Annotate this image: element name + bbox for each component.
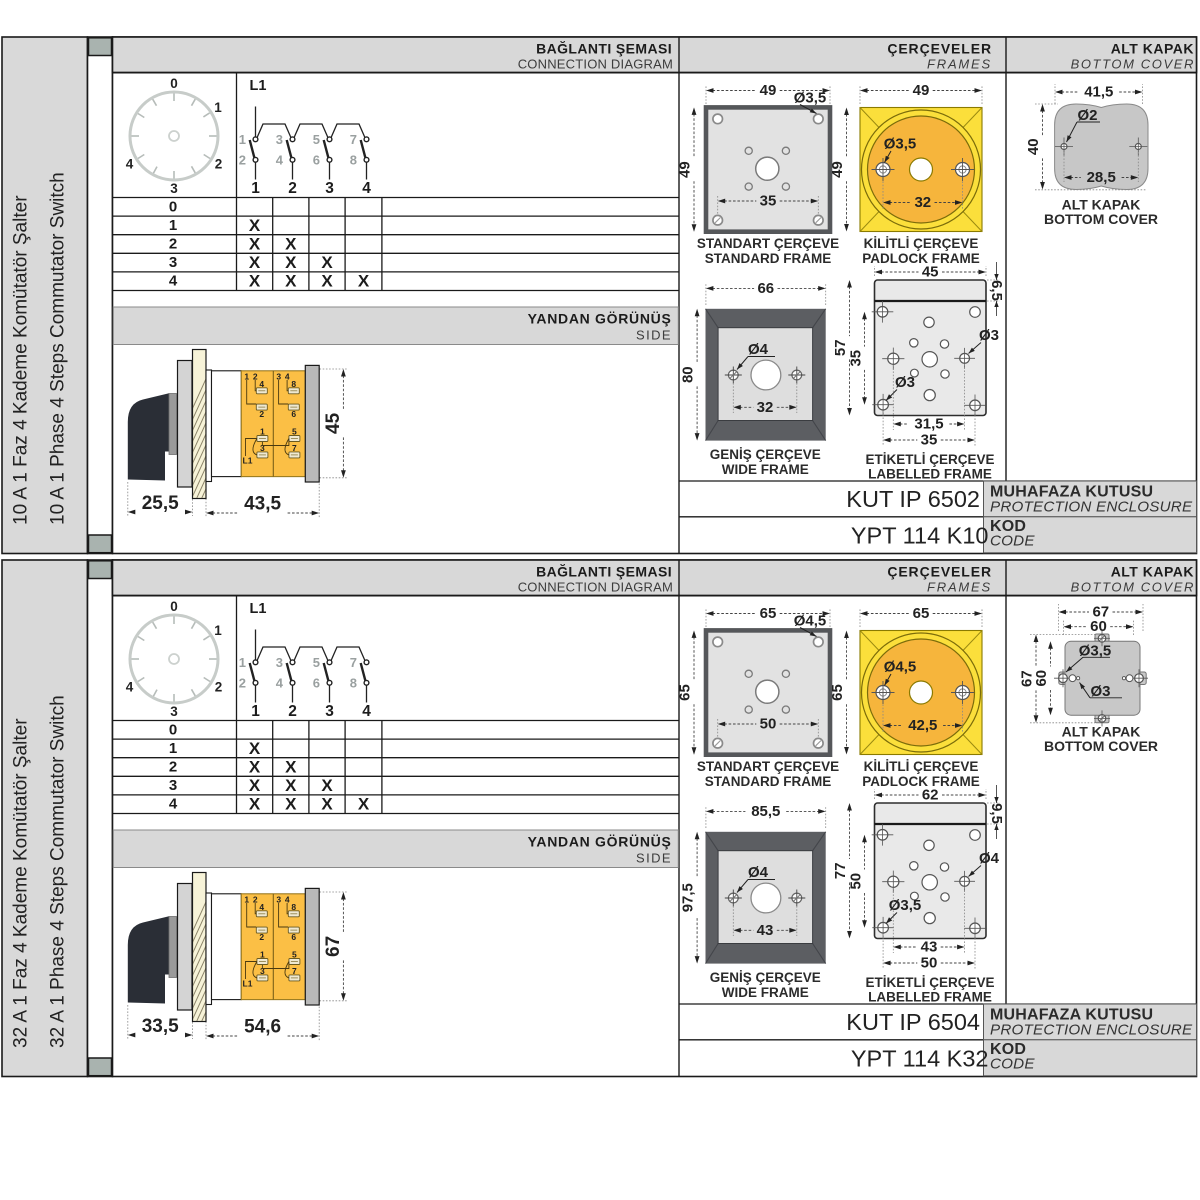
svg-text:Ø3,5: Ø3,5 [1079,642,1112,659]
svg-text:CODE: CODE [990,1056,1035,1073]
svg-text:ÇERÇEVELER: ÇERÇEVELER [887,40,992,56]
svg-text:Ø3: Ø3 [979,327,999,344]
svg-text:2: 2 [253,371,258,381]
svg-text:97,5: 97,5 [680,883,697,912]
svg-text:KUT IP 6504: KUT IP 6504 [846,1009,980,1035]
svg-text:3: 3 [169,254,177,271]
svg-text:WIDE FRAME: WIDE FRAME [722,985,809,1000]
svg-text:50: 50 [921,955,938,972]
svg-text:1: 1 [239,655,246,670]
svg-text:7: 7 [350,655,357,670]
svg-text:1: 1 [214,623,222,638]
svg-text:YPT 114 K10: YPT 114 K10 [851,523,989,549]
svg-text:35: 35 [848,350,865,367]
svg-text:49: 49 [913,82,930,99]
svg-text:10 A 1 Phase 4 Steps Commutato: 10 A 1 Phase 4 Steps Commutator Switch [48,172,69,525]
svg-text:2: 2 [288,180,297,197]
svg-text:4: 4 [276,153,284,168]
svg-text:1: 1 [214,100,222,115]
svg-text:35: 35 [760,193,777,210]
svg-text:9,5: 9,5 [988,803,1005,824]
svg-text:PROTECTION ENCLOSURE: PROTECTION ENCLOSURE [990,499,1193,516]
svg-text:6: 6 [313,676,320,691]
svg-text:CONNECTION DIAGRAM: CONNECTION DIAGRAM [518,579,673,594]
svg-text:Ø3,5: Ø3,5 [884,136,917,153]
svg-text:Ø4: Ø4 [979,850,1000,867]
svg-text:GENİŞ ÇERÇEVE: GENİŞ ÇERÇEVE [710,447,821,462]
svg-text:FRAMES: FRAMES [927,56,992,71]
svg-text:PROTECTION ENCLOSURE: PROTECTION ENCLOSURE [990,1022,1193,1039]
svg-text:6: 6 [291,932,296,942]
svg-text:2: 2 [239,153,246,168]
svg-text:BOTTOM COVER: BOTTOM COVER [1044,211,1158,227]
svg-text:ÇERÇEVELER: ÇERÇEVELER [887,563,992,579]
svg-text:WIDE FRAME: WIDE FRAME [722,462,809,477]
svg-text:49: 49 [760,82,777,99]
svg-text:4: 4 [276,676,284,691]
svg-text:X: X [358,795,370,814]
svg-text:X: X [285,795,297,814]
svg-text:67: 67 [323,936,344,957]
svg-text:49: 49 [677,161,694,178]
svg-text:YPT 114 K32: YPT 114 K32 [851,1046,989,1072]
svg-text:GENİŞ ÇERÇEVE: GENİŞ ÇERÇEVE [710,970,821,985]
svg-text:65: 65 [829,684,846,701]
svg-text:LABELLED FRAME: LABELLED FRAME [868,990,992,1005]
svg-text:L1: L1 [250,601,267,617]
svg-text:STANDART ÇERÇEVE: STANDART ÇERÇEVE [697,759,839,774]
svg-text:X: X [321,795,333,814]
svg-text:0: 0 [169,198,177,215]
svg-text:1: 1 [169,740,177,757]
svg-text:6: 6 [313,153,320,168]
svg-text:6,5: 6,5 [988,280,1005,301]
svg-text:65: 65 [760,605,777,622]
svg-text:0: 0 [169,721,177,738]
svg-text:BOTTOM COVER: BOTTOM COVER [1071,579,1195,594]
svg-text:41,5: 41,5 [1084,84,1113,101]
svg-text:2: 2 [253,894,258,904]
svg-text:2: 2 [169,236,177,253]
svg-text:1: 1 [244,371,249,381]
svg-text:STANDARD FRAME: STANDARD FRAME [705,251,832,266]
svg-text:4: 4 [169,796,178,813]
svg-text:2: 2 [215,156,223,171]
svg-text:1: 1 [244,894,249,904]
svg-text:2: 2 [239,676,246,691]
svg-text:25,5: 25,5 [142,493,179,514]
svg-text:7: 7 [292,966,297,976]
svg-text:X: X [358,272,370,291]
svg-text:32 A 1 Faz 4 Kademe Komütatör: 32 A 1 Faz 4 Kademe Komütatör Şalter [11,718,32,1048]
svg-text:8: 8 [291,902,296,912]
svg-text:77: 77 [832,862,849,879]
svg-text:L1: L1 [250,78,267,94]
svg-text:8: 8 [291,379,296,389]
svg-text:3: 3 [169,777,177,794]
svg-text:BOTTOM COVER: BOTTOM COVER [1071,56,1195,71]
svg-text:31,5: 31,5 [914,416,943,433]
svg-text:4: 4 [126,156,134,171]
svg-text:6: 6 [291,409,296,419]
svg-text:X: X [321,272,333,291]
svg-text:STANDARD FRAME: STANDARD FRAME [705,774,832,789]
svg-text:4: 4 [362,180,371,197]
svg-text:43,5: 43,5 [244,494,281,515]
svg-text:1: 1 [260,427,265,437]
svg-text:X: X [249,795,261,814]
svg-text:40: 40 [1025,138,1042,155]
svg-text:4: 4 [362,703,371,720]
svg-text:5: 5 [292,950,297,960]
svg-text:45: 45 [922,264,939,281]
svg-text:4: 4 [259,902,264,912]
svg-text:57: 57 [832,339,849,356]
svg-text:5: 5 [313,132,320,147]
svg-text:KUT IP 6502: KUT IP 6502 [846,486,980,512]
svg-text:SIDE: SIDE [636,851,672,866]
svg-text:Ø4,5: Ø4,5 [794,613,827,630]
svg-text:L1: L1 [243,456,253,466]
svg-text:65: 65 [677,684,694,701]
svg-text:4: 4 [285,894,290,904]
svg-text:LABELLED FRAME: LABELLED FRAME [868,467,992,482]
svg-text:Ø4: Ø4 [748,864,769,881]
svg-text:X: X [321,253,333,272]
svg-text:X: X [249,253,261,272]
svg-text:X: X [285,758,297,777]
svg-text:60: 60 [1090,618,1107,635]
svg-text:2: 2 [215,679,223,694]
svg-text:Ø4,5: Ø4,5 [884,659,917,676]
svg-text:L1: L1 [243,979,253,989]
svg-text:1: 1 [251,180,260,197]
svg-text:32: 32 [914,194,931,211]
svg-text:54,6: 54,6 [244,1017,281,1038]
svg-text:1: 1 [239,132,246,147]
svg-text:SIDE: SIDE [636,328,672,343]
svg-text:1: 1 [251,703,260,720]
svg-text:CODE: CODE [990,533,1035,550]
svg-text:49: 49 [829,161,846,178]
svg-text:0: 0 [170,76,178,91]
svg-text:43: 43 [757,922,774,939]
svg-text:4: 4 [126,679,134,694]
svg-text:85,5: 85,5 [751,803,780,820]
svg-text:X: X [285,776,297,795]
svg-text:ALT KAPAK: ALT KAPAK [1111,40,1194,56]
svg-text:0: 0 [170,599,178,614]
svg-text:80: 80 [680,366,697,383]
svg-text:8: 8 [350,153,357,168]
svg-text:35: 35 [921,432,938,449]
svg-text:32 A 1 Phase 4 Steps Commutato: 32 A 1 Phase 4 Steps Commutator Switch [48,695,69,1048]
svg-text:X: X [249,272,261,291]
svg-text:X: X [249,776,261,795]
svg-text:1: 1 [260,950,265,960]
svg-text:3: 3 [276,132,283,147]
svg-text:3: 3 [325,180,334,197]
svg-text:4: 4 [169,273,178,290]
svg-text:ETİKETLİ ÇERÇEVE: ETİKETLİ ÇERÇEVE [865,452,994,467]
svg-text:66: 66 [757,280,774,297]
svg-text:X: X [249,235,261,254]
svg-text:7: 7 [350,132,357,147]
svg-text:3: 3 [276,894,281,904]
svg-text:X: X [285,253,297,272]
svg-text:X: X [285,235,297,254]
svg-text:X: X [321,776,333,795]
svg-text:8: 8 [350,676,357,691]
svg-text:4: 4 [259,379,264,389]
svg-text:3: 3 [170,181,178,196]
svg-text:33,5: 33,5 [142,1016,179,1037]
svg-text:28,5: 28,5 [1087,169,1116,186]
svg-text:1: 1 [169,217,177,234]
svg-text:YANDAN GÖRÜNÜŞ: YANDAN GÖRÜNÜŞ [528,834,672,850]
svg-text:BOTTOM COVER: BOTTOM COVER [1044,738,1158,754]
svg-text:X: X [285,272,297,291]
svg-text:CONNECTION DIAGRAM: CONNECTION DIAGRAM [518,56,673,71]
svg-text:2: 2 [288,703,297,720]
svg-text:Ø3: Ø3 [895,374,915,391]
svg-text:KİLİTLİ ÇERÇEVE: KİLİTLİ ÇERÇEVE [864,236,979,251]
svg-text:2: 2 [259,932,264,942]
svg-text:7: 7 [292,443,297,453]
svg-text:ALT KAPAK: ALT KAPAK [1111,563,1194,579]
svg-text:YANDAN GÖRÜNÜŞ: YANDAN GÖRÜNÜŞ [528,311,672,327]
svg-text:5: 5 [292,427,297,437]
svg-text:X: X [249,758,261,777]
svg-text:4: 4 [285,371,290,381]
svg-text:5: 5 [313,655,320,670]
svg-text:45: 45 [323,412,344,434]
svg-text:60: 60 [1033,670,1050,687]
svg-text:2: 2 [259,409,264,419]
svg-text:X: X [249,216,261,235]
svg-text:62: 62 [922,787,939,804]
svg-text:ETİKETLİ ÇERÇEVE: ETİKETLİ ÇERÇEVE [865,975,994,990]
svg-text:32: 32 [757,399,774,416]
svg-text:50: 50 [760,716,777,733]
svg-text:2: 2 [169,759,177,776]
svg-text:Ø2: Ø2 [1077,107,1097,124]
svg-text:X: X [249,739,261,758]
svg-text:65: 65 [913,605,930,622]
svg-text:10 A 1 Faz 4 Kademe Komütatör: 10 A 1 Faz 4 Kademe Komütatör Şalter [11,195,32,525]
svg-text:Ø4: Ø4 [748,341,769,358]
svg-text:Ø3,5: Ø3,5 [794,90,827,107]
svg-text:KİLİTLİ ÇERÇEVE: KİLİTLİ ÇERÇEVE [864,759,979,774]
svg-text:43: 43 [921,939,938,956]
svg-text:STANDART ÇERÇEVE: STANDART ÇERÇEVE [697,236,839,251]
svg-text:ALT KAPAK: ALT KAPAK [1062,724,1141,740]
svg-text:50: 50 [848,873,865,890]
svg-text:3: 3 [170,704,178,719]
svg-text:BAĞLANTI ŞEMASI: BAĞLANTI ŞEMASI [536,562,672,579]
svg-text:3: 3 [276,655,283,670]
svg-text:3: 3 [325,703,334,720]
svg-text:BAĞLANTI ŞEMASI: BAĞLANTI ŞEMASI [536,39,672,56]
svg-text:FRAMES: FRAMES [927,579,992,594]
svg-text:42,5: 42,5 [908,717,937,734]
svg-text:3: 3 [276,371,281,381]
